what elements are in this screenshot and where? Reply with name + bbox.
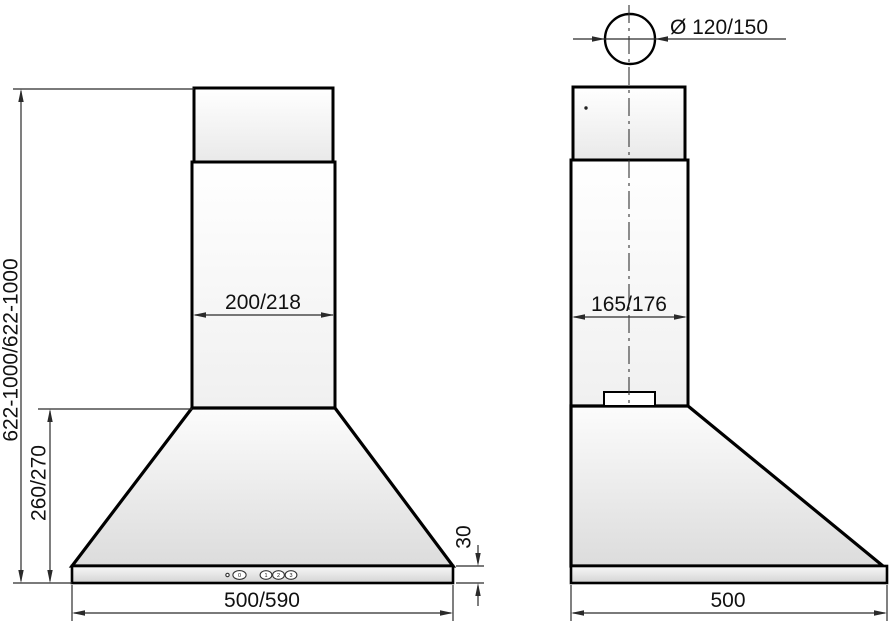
arrowhead bbox=[440, 610, 453, 615]
arrowhead bbox=[47, 409, 52, 422]
hood-dimension-drawing: 0 1 2 3 bbox=[0, 0, 893, 624]
label-body-width: 500/590 bbox=[224, 589, 300, 612]
arrowhead bbox=[475, 553, 480, 566]
button-1-label: 1 bbox=[264, 573, 267, 579]
arrowhead bbox=[475, 583, 480, 596]
arrowhead bbox=[18, 89, 23, 102]
side-base-panel bbox=[571, 566, 887, 583]
label-body-depth: 500 bbox=[710, 589, 745, 612]
arrowhead bbox=[655, 36, 668, 41]
label-canopy-height: 260/270 bbox=[28, 445, 51, 521]
label-overall-height: 622-1000/622-1000 bbox=[0, 258, 23, 441]
arrowhead bbox=[47, 570, 52, 583]
control-panel bbox=[226, 571, 297, 580]
power-led bbox=[226, 573, 229, 576]
button-off-label: 0 bbox=[238, 573, 241, 579]
dim-panel-height bbox=[475, 545, 480, 606]
arrowhead bbox=[72, 610, 85, 615]
arrowhead bbox=[874, 610, 887, 615]
front-chimney-upper bbox=[194, 88, 333, 162]
button-2-label: 2 bbox=[277, 573, 280, 579]
screw-hole-dot bbox=[584, 106, 587, 109]
front-chimney-lower bbox=[192, 162, 335, 408]
front-view: 0 1 2 3 bbox=[72, 88, 453, 583]
label-chimney-depth: 165/176 bbox=[591, 293, 667, 316]
arrowhead bbox=[571, 610, 584, 615]
arrowhead bbox=[592, 36, 605, 41]
arrowhead bbox=[18, 570, 23, 583]
side-canopy bbox=[571, 406, 883, 566]
label-panel-height: 30 bbox=[453, 525, 476, 548]
front-canopy bbox=[72, 408, 453, 566]
label-chimney-width: 200/218 bbox=[225, 291, 301, 314]
drawing-canvas: 0 1 2 3 bbox=[0, 0, 893, 624]
button-3-label: 3 bbox=[289, 573, 292, 579]
label-duct-diameter: Ø 120/150 bbox=[670, 16, 768, 39]
